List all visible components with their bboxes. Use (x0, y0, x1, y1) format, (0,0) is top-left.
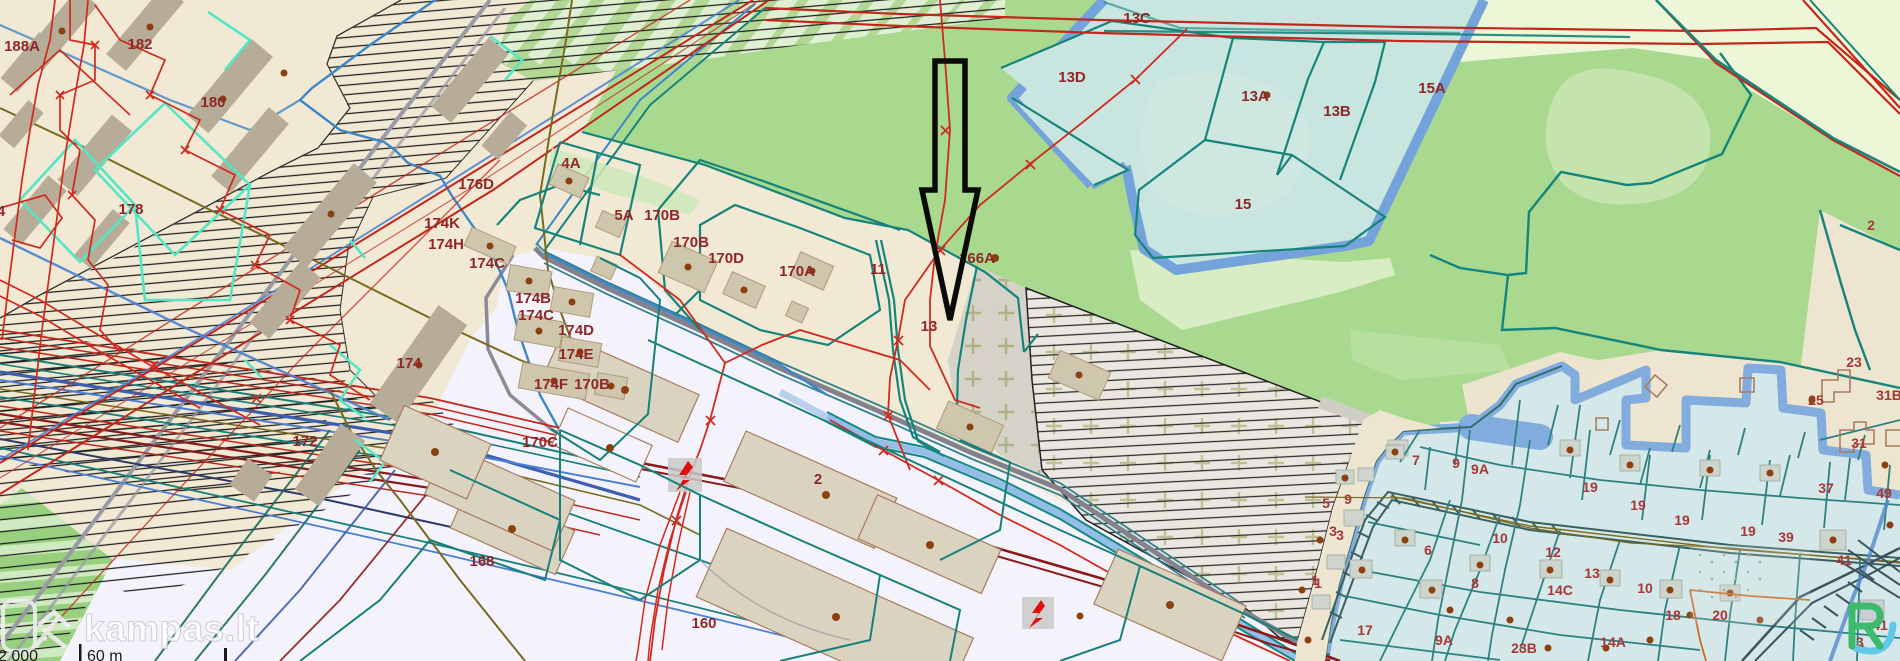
svg-text:7: 7 (1412, 452, 1420, 468)
svg-text:174D: 174D (558, 322, 594, 339)
svg-text:19: 19 (1740, 523, 1756, 539)
svg-text:6: 6 (1424, 542, 1432, 558)
svg-text:168: 168 (469, 553, 494, 570)
svg-text:13C: 13C (1123, 10, 1151, 27)
svg-text:20: 20 (1712, 607, 1728, 623)
svg-text:172: 172 (292, 433, 317, 450)
svg-text:49: 49 (1876, 485, 1892, 501)
svg-text:9A: 9A (1471, 461, 1489, 477)
svg-text:9: 9 (1452, 455, 1460, 471)
svg-text:kampas.lt: kampas.lt (84, 608, 259, 649)
svg-text:37: 37 (1818, 480, 1834, 496)
svg-text:14C: 14C (1547, 582, 1573, 598)
svg-text:10: 10 (1492, 530, 1508, 546)
svg-text:17: 17 (1357, 622, 1373, 638)
svg-text:170B: 170B (644, 207, 680, 224)
svg-text:188A: 188A (4, 38, 40, 55)
svg-text:23B: 23B (1511, 640, 1537, 656)
svg-text:182: 182 (127, 36, 152, 53)
svg-text:9: 9 (1344, 491, 1352, 507)
svg-text:60 m: 60 m (87, 648, 123, 661)
svg-text:13: 13 (1584, 565, 1600, 581)
svg-text:4A: 4A (561, 155, 580, 172)
svg-text:170B: 170B (673, 234, 709, 251)
svg-text:11: 11 (870, 261, 886, 278)
svg-text:160: 160 (691, 615, 716, 632)
svg-text:19: 19 (1674, 512, 1690, 528)
svg-text:15: 15 (1235, 196, 1252, 213)
svg-text:13D: 13D (1058, 69, 1086, 86)
svg-text:13B: 13B (1323, 103, 1351, 120)
svg-text:174C: 174C (469, 255, 505, 272)
svg-text:180: 180 (200, 94, 225, 111)
svg-text:178: 178 (118, 201, 143, 218)
svg-text:14A: 14A (1600, 634, 1626, 650)
svg-text:3: 3 (1336, 527, 1344, 543)
svg-text:170D: 170D (708, 250, 744, 267)
svg-text:19: 19 (1582, 479, 1598, 495)
svg-text:23: 23 (1846, 354, 1862, 370)
svg-text:19: 19 (1630, 497, 1646, 513)
svg-text:15A: 15A (1418, 80, 1446, 97)
svg-text:41: 41 (1836, 552, 1852, 568)
svg-text:12: 12 (1545, 544, 1561, 560)
svg-text:174F: 174F (534, 376, 568, 393)
svg-text:18: 18 (1665, 607, 1681, 623)
svg-text:5: 5 (1322, 495, 1330, 511)
svg-text:13: 13 (921, 318, 938, 335)
svg-text:8: 8 (1471, 575, 1479, 591)
svg-text:39: 39 (1778, 529, 1794, 545)
svg-text:31: 31 (1851, 435, 1867, 451)
svg-text:174E: 174E (558, 346, 593, 363)
svg-text:174C: 174C (518, 307, 554, 324)
svg-text:31B: 31B (1876, 387, 1900, 403)
svg-text:1: 1 (1314, 575, 1322, 591)
svg-text:13A: 13A (1241, 88, 1269, 105)
svg-text:4: 4 (0, 203, 6, 220)
svg-text:176D: 176D (458, 176, 494, 193)
svg-text:25: 25 (1808, 392, 1824, 408)
svg-text:174H: 174H (428, 236, 464, 253)
svg-text:10: 10 (1637, 580, 1653, 596)
svg-text:2 000: 2 000 (0, 648, 38, 661)
svg-text:5A: 5A (614, 207, 633, 224)
svg-text:174B: 174B (515, 290, 551, 307)
svg-text:2: 2 (814, 471, 822, 488)
svg-text:9A: 9A (1435, 632, 1453, 648)
svg-text:170A: 170A (779, 263, 815, 280)
svg-text:174K: 174K (424, 215, 460, 232)
svg-text:2: 2 (1867, 217, 1875, 233)
svg-text:174: 174 (396, 355, 422, 372)
svg-text:170B: 170B (574, 376, 610, 393)
svg-text:170C: 170C (522, 434, 558, 451)
